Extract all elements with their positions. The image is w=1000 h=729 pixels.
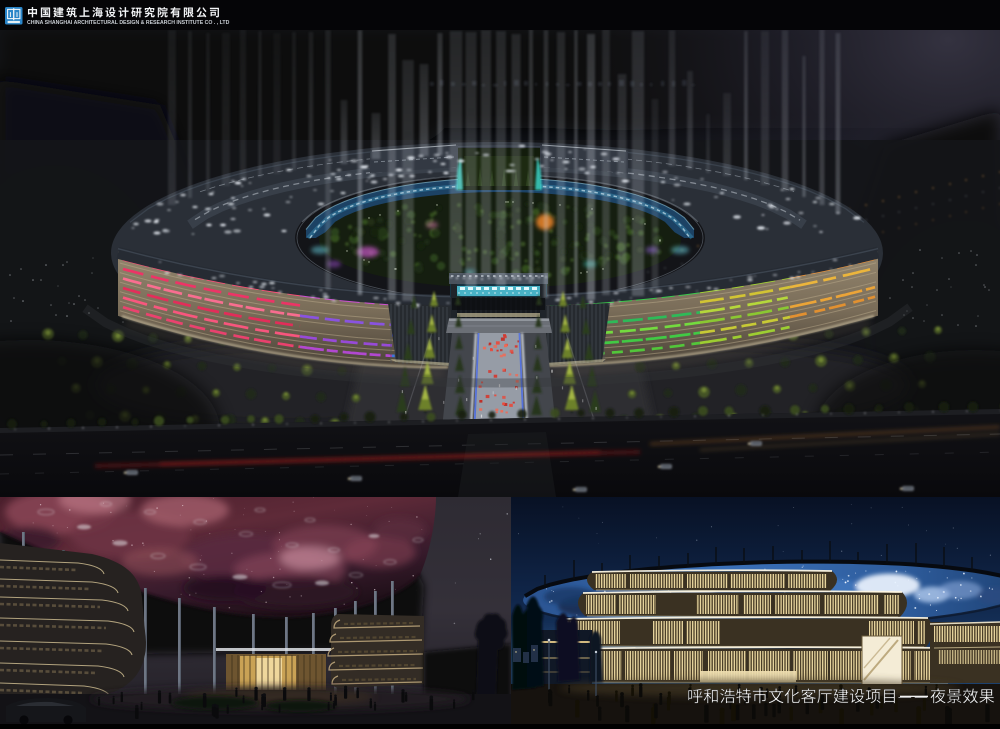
svg-text:CHINA SHANGHAI ARCHITECTURAL D: CHINA SHANGHAI ARCHITECTURAL DESIGN & RE… — [27, 20, 230, 26]
